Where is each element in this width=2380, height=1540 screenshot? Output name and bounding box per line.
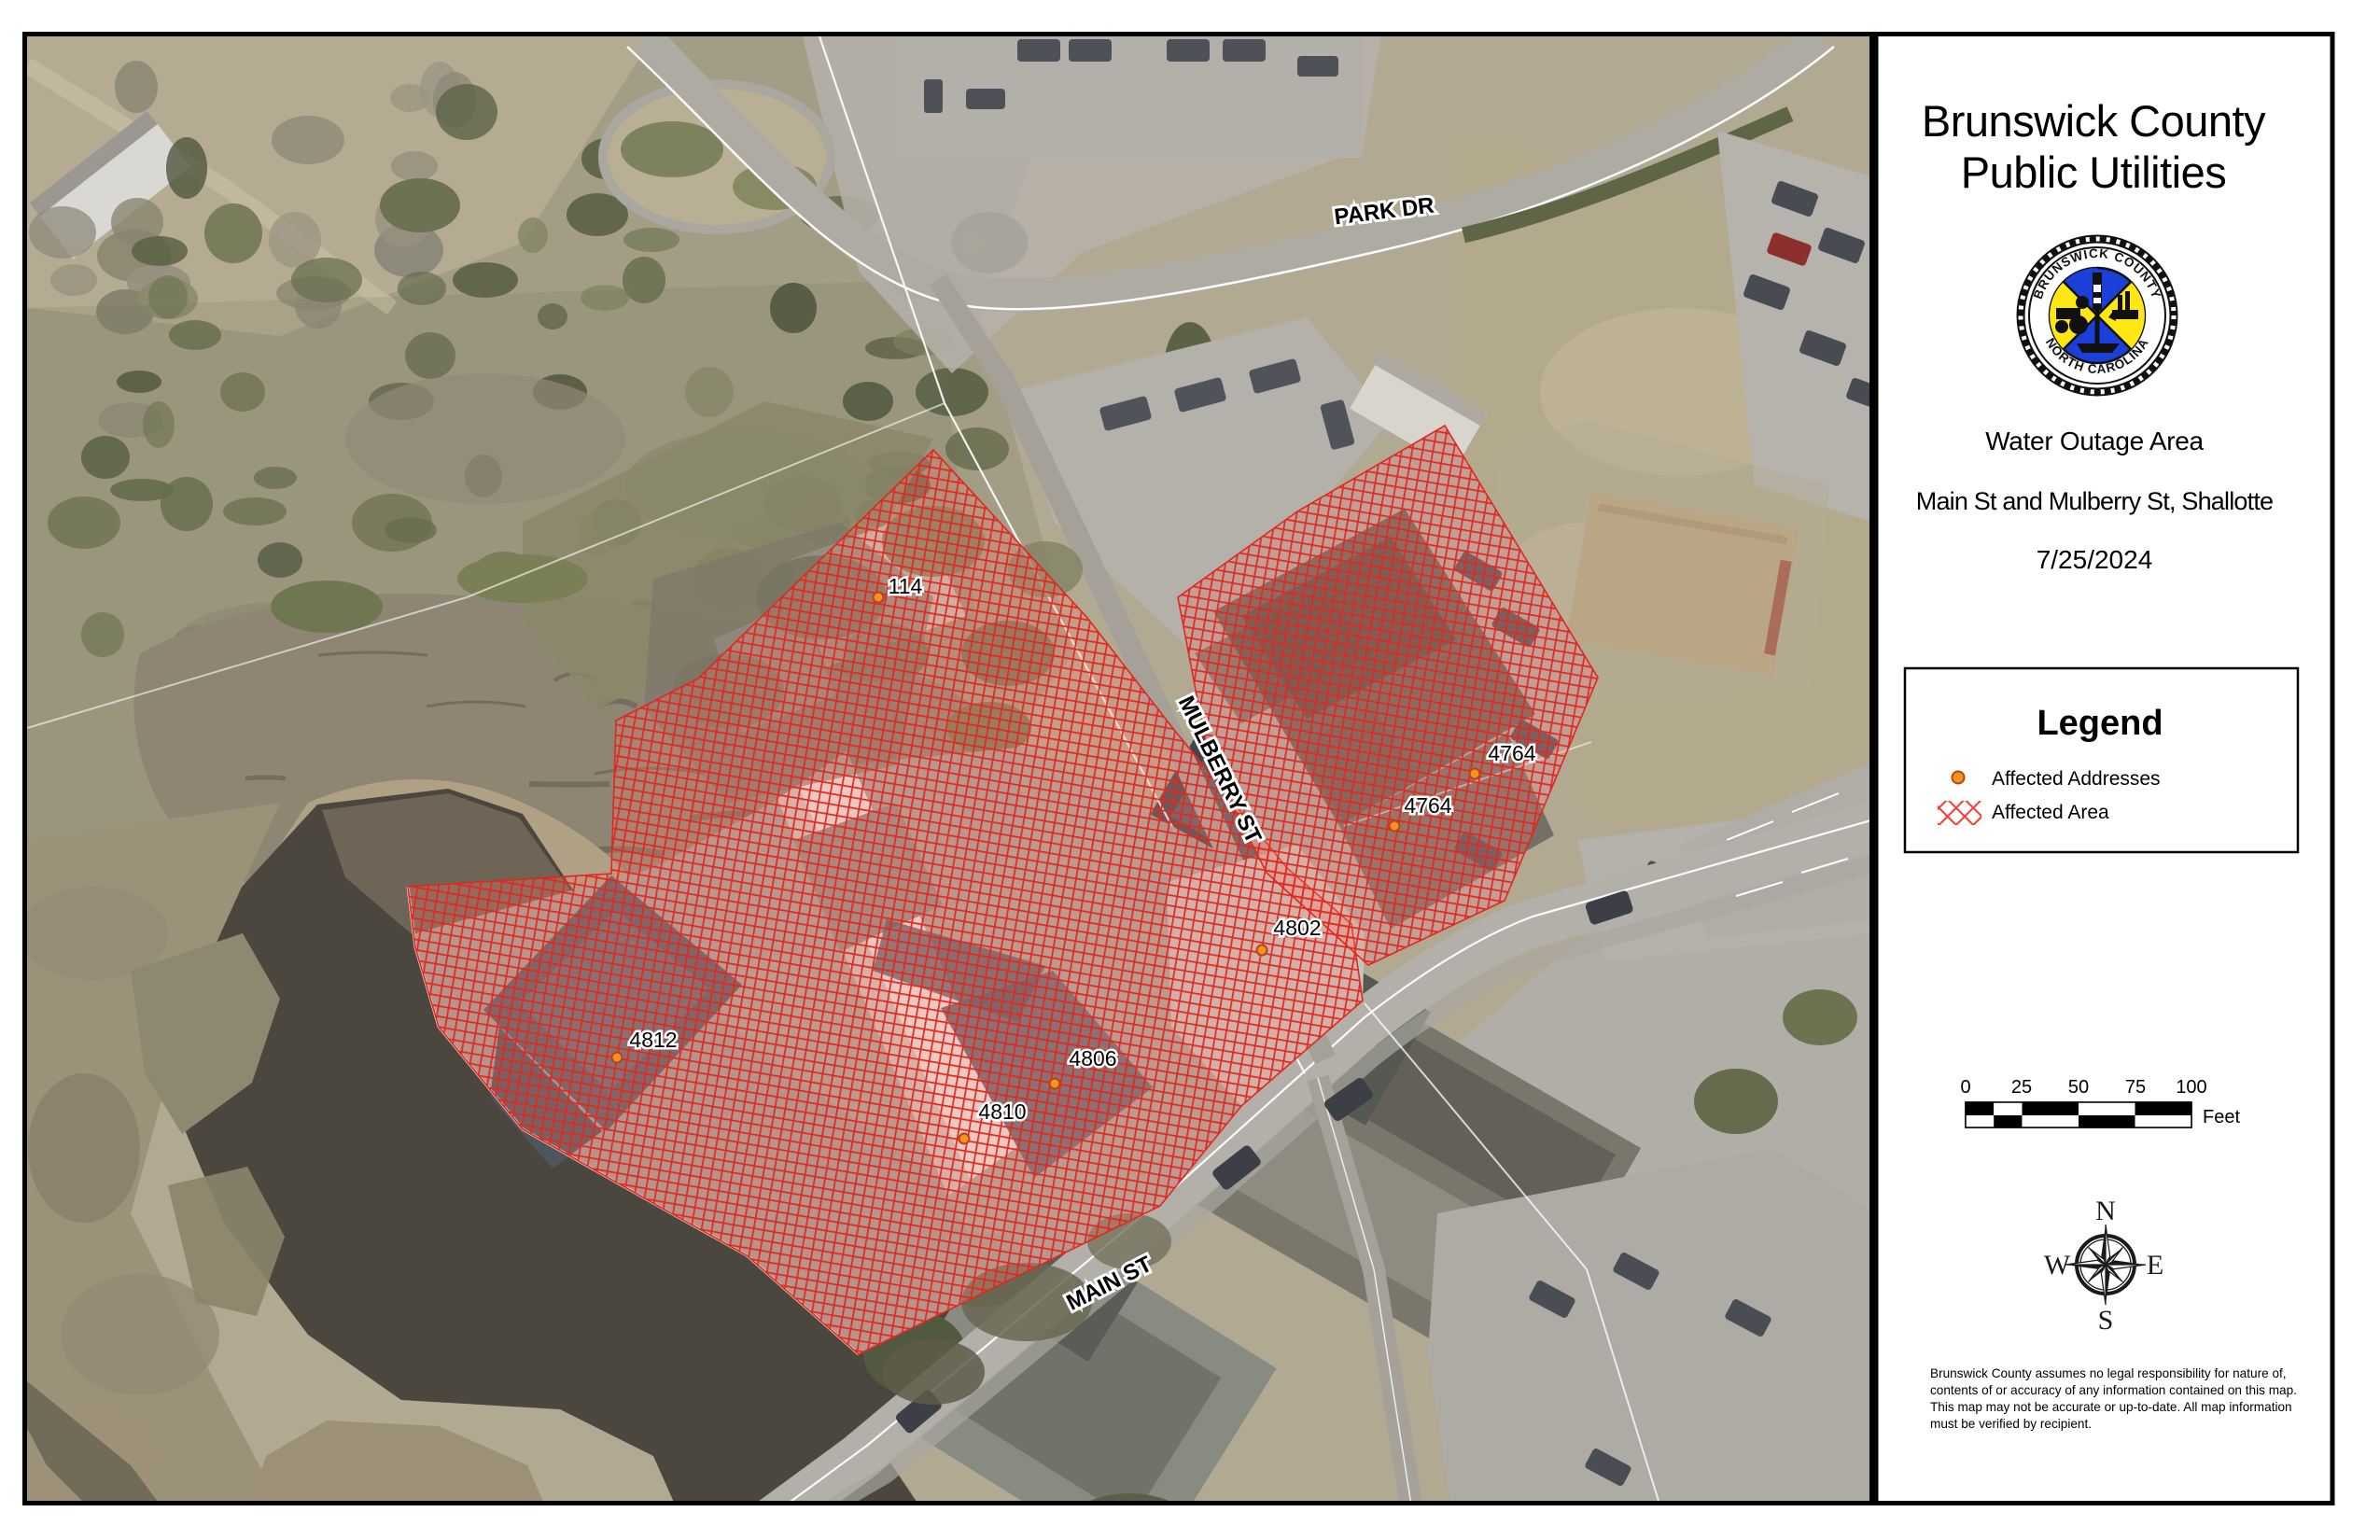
svg-text:N: N: [2095, 1196, 2116, 1226]
svg-text:Main St and Mulberry St, Shall: Main St and Mulberry St, Shallotte: [1916, 487, 2274, 515]
svg-text:75: 75: [2125, 1077, 2146, 1098]
svg-text:4812: 4812: [629, 1028, 677, 1052]
svg-text:0: 0: [1960, 1077, 1970, 1098]
svg-text:This map may not be accurate o: This map may not be accurate or up-to-da…: [1930, 1400, 2292, 1414]
svg-text:4810: 4810: [978, 1099, 1026, 1124]
svg-text:Affected Addresses: Affected Addresses: [1992, 768, 2161, 790]
svg-text:25: 25: [2011, 1077, 2032, 1098]
svg-text:Affected Area: Affected Area: [1992, 802, 2109, 823]
svg-text:50: 50: [2068, 1077, 2089, 1098]
svg-text:4806: 4806: [1069, 1046, 1116, 1071]
svg-text:Brunswick County assumes no le: Brunswick County assumes no legal respon…: [1930, 1366, 2287, 1380]
svg-text:Water Outage Area: Water Outage Area: [1985, 427, 2204, 455]
svg-text:E: E: [2147, 1250, 2163, 1281]
svg-text:W: W: [2044, 1250, 2071, 1281]
svg-text:Public Utilities: Public Utilities: [1961, 147, 2227, 197]
svg-text:4802: 4802: [1273, 916, 1321, 940]
svg-text:114: 114: [889, 574, 923, 598]
svg-text:Legend: Legend: [2037, 704, 2163, 743]
svg-text:7/25/2024: 7/25/2024: [2037, 545, 2153, 574]
svg-text:Feet: Feet: [2203, 1107, 2240, 1127]
svg-text:4764: 4764: [1404, 793, 1451, 818]
svg-text:Brunswick County: Brunswick County: [1922, 96, 2266, 146]
svg-text:contents of or accuracy of any: contents of or accuracy of any informati…: [1930, 1383, 2297, 1397]
svg-text:must be verified by recipient.: must be verified by recipient.: [1930, 1417, 2092, 1431]
svg-text:100: 100: [2176, 1077, 2206, 1098]
svg-text:4764: 4764: [1488, 741, 1535, 765]
svg-text:S: S: [2098, 1305, 2114, 1336]
